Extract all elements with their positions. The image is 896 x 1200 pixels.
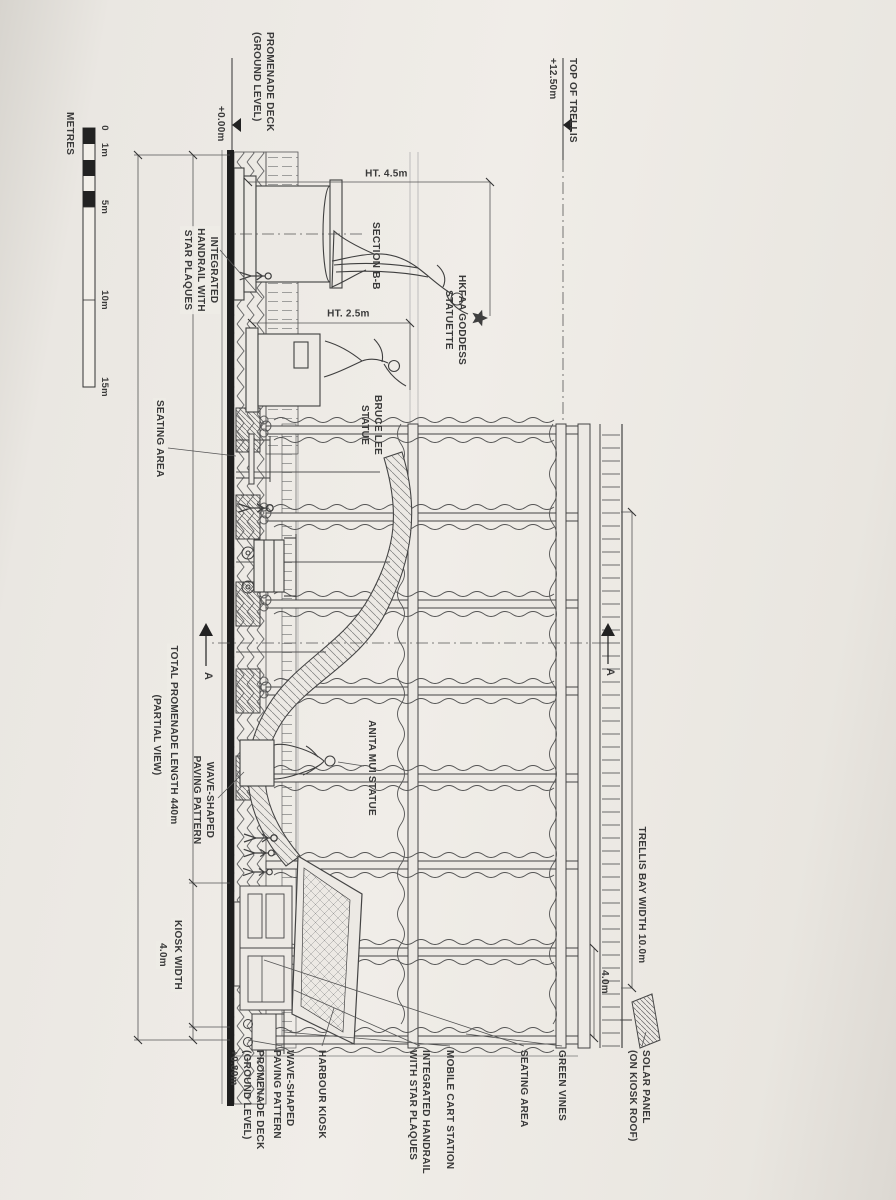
bruce-height-dim: HT. 2.5m [303,307,393,320]
trellis-level-value: +12.50m [546,58,559,100]
scale-bar-title: METRES [63,112,76,155]
drawing-sheet: PROMENADE DECK (GROUND LEVEL) +0.00m TOP… [0,0,896,1200]
scale-tick-0: 0 [97,125,110,131]
solar-panel [620,994,660,1048]
scale-tick-15m: 15m [97,377,110,397]
handrail-right-label: INTEGRATED HANDRAIL WITH STAR PLAQUES [406,1050,432,1174]
trellis-level-label: TOP OF TRELLIS [566,58,579,143]
trellis-mid-beam-upper [556,424,566,1048]
end-bay-dim: 4.0m [598,970,611,994]
wave-paving-left-label: WAVE-SHAPED PAVING PATTERN [190,756,216,845]
bruce-lee-label: BRUCE LEE STATUE [358,395,384,455]
deck-ground-line [222,150,234,1106]
deck-level-value: +0.00m [214,106,227,142]
scale-bar [83,128,95,387]
goddess-label: HKFAA GODDESS STATUETTE [442,275,468,365]
elevation-linework [0,0,896,1200]
star-icon [472,310,488,327]
greenery-label: GREEN VINES [555,1050,568,1121]
scale-tick-5m: 5m [97,200,110,214]
goddess-height-dim: HT. 4.5m [341,167,431,180]
section-bb-label: SECTION B-B [369,222,382,290]
section-arrow-icon [199,623,213,636]
trellis-roof [578,424,622,1048]
deck-right-label: PROMENADE DECK (GROUND LEVEL) +0.80m [226,1050,266,1150]
total-length-dim: TOTAL PROMENADE LENGTH 440m [167,644,180,827]
wave-paving-right-label: WAVE-SHAPED PAVING PATTERN [270,1050,296,1139]
section-a-marker-bottom: A [200,672,215,680]
partial-view-note: (PARTIAL VIEW) [150,693,163,778]
scale-tick-10m: 10m [97,290,110,310]
mobile-cart-label: MOBILE CART STATION [443,1050,456,1169]
scale-tick-1m: 1m [97,143,110,157]
trellis-bay-dim: TRELLIS BAY WIDTH 10.0m [635,827,648,964]
deck-level-label: PROMENADE DECK (GROUND LEVEL) [250,32,276,132]
anita-mui-label: ANITA MUI STATUE [365,720,378,816]
seating-left-label: SEATING AREA [153,398,166,479]
handrail-left-label: INTEGRATED HANDRAIL WITH STAR PLAQUES [180,226,220,314]
drawing-page: PROMENADE DECK (GROUND LEVEL) +0.00m TOP… [0,0,896,1200]
kiosk-width-value: 4.0m [156,941,169,969]
section-a-marker-top: A [602,668,617,676]
harbour-kiosk-label: HARBOUR KIOSK [315,1050,328,1139]
solar-panel-label: SOLAR PANEL (ON KIOSK ROOF) [626,1050,652,1142]
seating-right-label: SEATING AREA [517,1050,530,1127]
level-marker-icon [232,118,241,132]
kiosk-width-label: KIOSK WIDTH [171,918,184,992]
